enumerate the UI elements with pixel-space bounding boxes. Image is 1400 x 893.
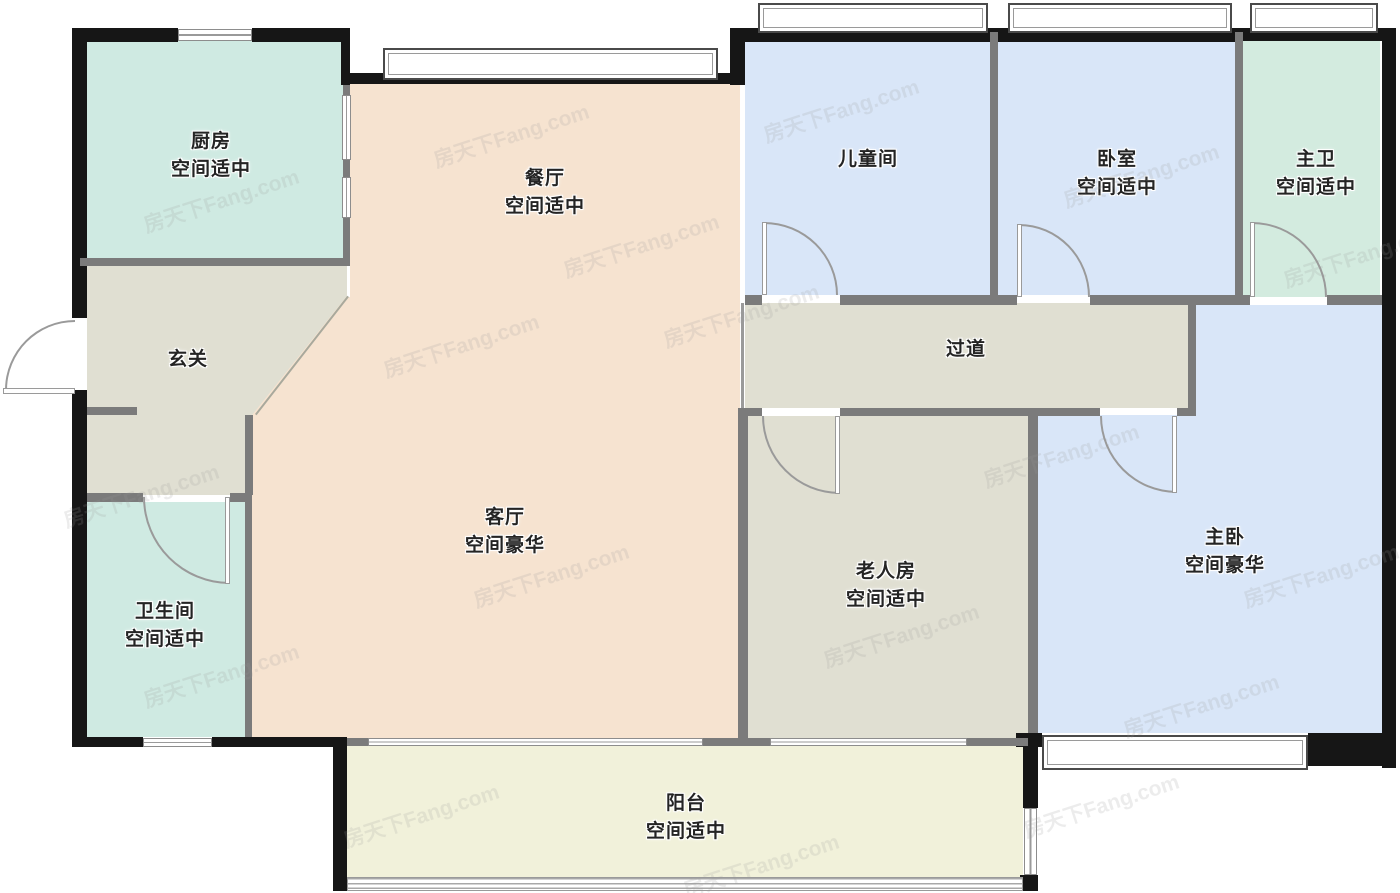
wall-hallway-bottom-b [840,408,1100,416]
wall-bath-bottom-b [212,737,347,747]
label-bedroom: 卧室 空间适中 [1077,146,1157,202]
label-children: 儿童间 [838,146,898,174]
wall-balcony-left [333,737,347,891]
balcony-railing [347,877,1023,891]
elder-door-leaf [835,416,840,494]
label-balcony-name: 阳台 [646,790,726,818]
label-master-bath-name: 主卫 [1276,146,1356,174]
window-dining-top [383,48,718,80]
label-elder: 老人房 空间适中 [846,558,926,614]
living-hallway-boundary [741,303,744,408]
room-master-bed-upper [1196,305,1382,417]
wall-elder-master [1028,415,1038,733]
label-master-bed-name: 主卧 [1185,524,1265,552]
label-living-size: 空间豪华 [465,532,545,560]
label-children-name: 儿童间 [838,146,898,174]
window-balcony-right [1024,808,1037,875]
label-bedroom-name: 卧室 [1077,146,1157,174]
wall-masterbed-bottom-right [1308,733,1396,766]
bathroom-door-leaf [225,497,230,584]
children-door-leaf [762,222,767,295]
label-balcony: 阳台 空间适中 [646,790,726,846]
window-children-top [758,3,988,33]
wall-top-kitchen-b [252,28,350,42]
window-kitchen-dining-a [342,95,351,160]
label-master-bath: 主卫 空间适中 [1276,146,1356,202]
label-elder-size: 空间适中 [846,586,926,614]
label-living-name: 客厅 [465,504,545,532]
window-masterbath-top [1250,3,1378,33]
label-hallway-name: 过道 [946,336,986,364]
wall-living-bottom-b [703,738,748,746]
label-kitchen-name: 厨房 [171,128,251,156]
label-bathroom-size: 空间适中 [125,626,205,654]
wall-kitchen-right-b [343,160,350,177]
wall-step [730,28,745,85]
wall-bath-top-a [87,493,143,502]
window-kitchen-top [178,29,252,41]
wall-children-bedroom [990,32,998,305]
entrance-door-arc [5,320,75,390]
wall-hallway-bottom-c [1177,408,1196,416]
window-bath-bottom [143,738,212,747]
window-elder-bottom [770,738,967,746]
wall-kitchen-right-a [343,85,350,95]
label-entry-name: 玄关 [168,346,208,374]
label-kitchen-size: 空间适中 [171,156,251,184]
wall-kitchen-right-c [343,218,350,266]
label-master-bath-size: 空间适中 [1276,174,1356,202]
wall-rooms-bottom-d [1327,295,1382,305]
wall-entry-living [245,415,253,495]
slider-living-balcony [368,738,703,746]
masterbed-door-leaf [1172,416,1177,493]
label-dining-name: 餐厅 [505,165,585,193]
wall-rooms-bottom-a [745,295,762,305]
wall-elder-bottom-a [748,738,770,746]
wall-bath-right [245,495,252,737]
masterbath-door-leaf [1250,222,1255,297]
bay-window-master-bed [1042,735,1308,770]
wall-elder-bottom-b [967,738,1028,746]
label-elder-name: 老人房 [846,558,926,586]
wall-entry-stub [87,407,137,415]
window-kitchen-dining-b [342,177,351,218]
window-bedroom-top [1008,3,1232,33]
wall-kitchen-bottom [80,258,350,266]
label-bathroom: 卫生间 空间适中 [125,598,205,654]
label-entry: 玄关 [168,346,208,374]
bedroom-door-leaf [1017,224,1022,297]
label-master-bed: 主卧 空间豪华 [1185,524,1265,580]
label-bedroom-size: 空间适中 [1077,174,1157,202]
label-hallway: 过道 [946,336,986,364]
wall-right [1382,30,1396,768]
label-kitchen: 厨房 空间适中 [171,128,251,184]
label-master-bed-size: 空间豪华 [1185,552,1265,580]
wall-elder-left [738,408,748,738]
wall-rooms-bottom-c [1090,295,1250,305]
wall-hallway-right [1188,303,1196,415]
wall-top-kitchen-a [72,28,178,42]
wall-bath-bottom-a [72,737,143,747]
wall-living-bottom-a [347,738,368,746]
floor-plan: 厨房 空间适中 餐厅 空间适中 儿童间 卧室 空间适中 主卫 空间适中 玄关 过… [0,0,1400,893]
label-dining-size: 空间适中 [505,193,585,221]
entrance-door-leaf [3,388,75,394]
wall-left-upper [72,30,87,318]
label-bathroom-name: 卫生间 [125,598,205,626]
wall-left-lower [72,390,87,747]
wall-bedroom-masterbath [1235,32,1243,305]
watermark-text: 房天下Fang.com [1019,766,1183,845]
label-living: 客厅 空间豪华 [465,504,545,560]
label-dining: 餐厅 空间适中 [505,165,585,221]
label-balcony-size: 空间适中 [646,818,726,846]
